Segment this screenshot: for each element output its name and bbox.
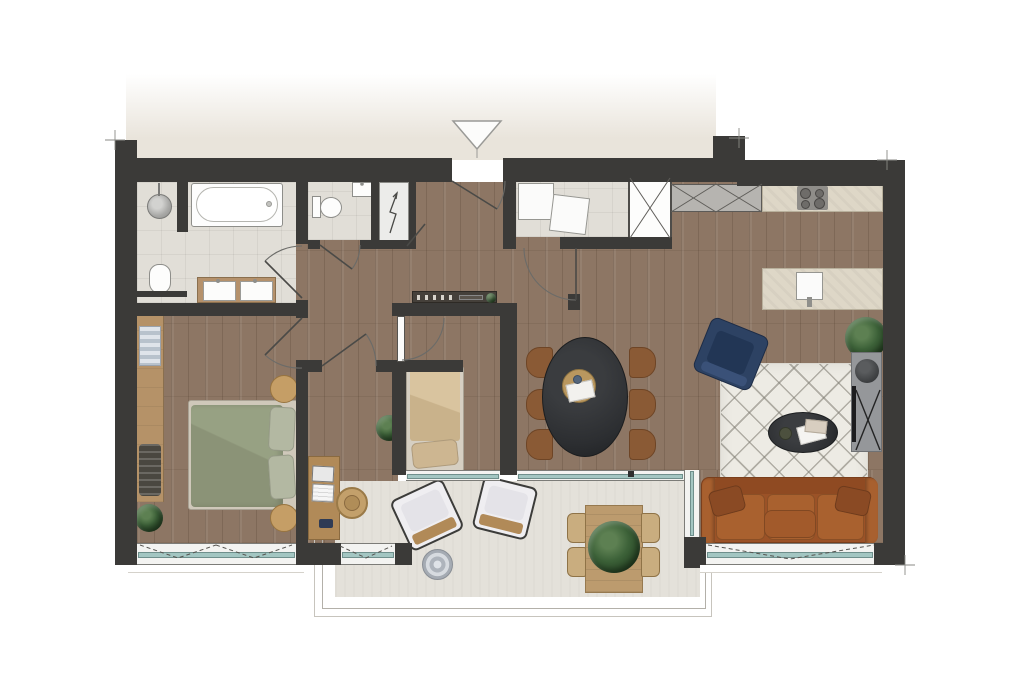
wall-bath-hall-upper xyxy=(296,158,308,244)
burner-4 xyxy=(814,198,825,209)
laptop-screen xyxy=(312,465,335,482)
wall-nook-west xyxy=(392,360,406,475)
burner-2 xyxy=(815,189,824,198)
living-west-glass-pane xyxy=(690,471,694,536)
bed-pillow-bottom xyxy=(267,454,296,500)
wall-shaft-east xyxy=(409,158,416,249)
wall-top-left xyxy=(115,158,452,182)
island-sink-faucet xyxy=(807,297,812,307)
wall-top-middle xyxy=(503,158,737,182)
technical-shaft-floor xyxy=(379,182,409,244)
wall-bathroom-south xyxy=(115,303,300,316)
wall-sideboard xyxy=(392,303,517,316)
master-window-sill xyxy=(128,565,304,573)
cooktop xyxy=(797,186,828,210)
wall-shower-partition xyxy=(177,162,188,232)
wall-living-se-post xyxy=(874,543,885,565)
study-window xyxy=(341,543,395,565)
wc-hand-basin xyxy=(352,182,372,197)
built-in-closet xyxy=(628,176,672,240)
wall-top-right xyxy=(737,160,905,186)
desk xyxy=(308,456,340,540)
wall-nook-stub xyxy=(406,360,463,372)
console-sideboard xyxy=(412,291,497,303)
round-side-table xyxy=(422,549,453,580)
burner-3 xyxy=(801,200,810,209)
tv-screen xyxy=(852,386,856,442)
table-vase xyxy=(573,375,582,384)
living-window-glass xyxy=(707,552,873,558)
slider-handle xyxy=(628,471,634,477)
dining-slider-glass xyxy=(518,474,683,479)
rattan-desk-chair xyxy=(336,487,368,519)
wall-laundry-south xyxy=(560,237,672,249)
vanity-basin-right xyxy=(240,281,273,301)
island-sink xyxy=(796,272,823,300)
open-wardrobe xyxy=(137,312,164,502)
wall-wc-east xyxy=(371,158,379,249)
terrace-plant xyxy=(588,521,640,573)
wall-dining-west xyxy=(500,303,517,475)
leather-sofa xyxy=(701,477,877,543)
candlestick-row xyxy=(417,295,455,300)
wall-hall-post xyxy=(568,294,580,310)
dryer xyxy=(549,194,590,235)
coffee-table-book xyxy=(804,419,827,434)
dining-sliding-door xyxy=(517,470,684,481)
double-bed xyxy=(188,400,298,510)
wall-living-sw-post xyxy=(684,537,706,568)
double-vanity xyxy=(197,277,276,303)
sofa-center-cushion xyxy=(764,510,816,538)
sideboard-plant xyxy=(486,293,496,303)
living-west-glass xyxy=(684,470,700,537)
dining-chair-left-3 xyxy=(526,429,553,460)
wall-right xyxy=(883,160,905,565)
outdoor-chair-1 xyxy=(567,513,586,543)
oval-dining-table xyxy=(542,337,628,457)
oval-coffee-table xyxy=(768,412,838,453)
table-open-book xyxy=(565,379,595,402)
master-window-glass xyxy=(138,552,295,558)
tv-speaker-ball xyxy=(855,359,879,383)
dining-chair-right-3 xyxy=(629,429,656,460)
wall-bedroom-east xyxy=(296,368,308,565)
sideboard-tray xyxy=(459,295,483,300)
wall-wc-south-left xyxy=(308,240,320,249)
laptop-keyboard xyxy=(312,483,335,502)
master-bedroom-plant xyxy=(135,504,163,532)
single-bed xyxy=(406,366,464,472)
hanging-clothes xyxy=(139,444,161,496)
wall-laundry-west xyxy=(503,158,516,249)
bedroom2-sliding-door xyxy=(406,470,500,481)
coffee-table-tray xyxy=(779,427,792,440)
round-nightstand-top xyxy=(270,375,298,403)
wall-left xyxy=(115,140,137,565)
outdoor-chair-4 xyxy=(641,547,660,577)
round-nightstand-bottom xyxy=(270,504,298,532)
washing-machine xyxy=(518,183,554,220)
exterior-ground-band xyxy=(126,74,716,160)
bathroom-toilet xyxy=(149,264,171,294)
burner-1 xyxy=(800,188,811,199)
outdoor-chair-3 xyxy=(641,513,660,543)
folded-clothes xyxy=(139,326,161,366)
kitchen-tall-cabinets xyxy=(671,184,762,212)
wc-toilet-bowl xyxy=(320,197,342,218)
vanity-basin-left xyxy=(203,281,236,301)
study-window-glass xyxy=(342,552,394,558)
living-window-sill xyxy=(700,565,882,573)
bedroom2-slider-glass xyxy=(407,474,499,479)
dining-chair-right-1 xyxy=(629,347,656,378)
single-bed-duvet xyxy=(410,369,460,441)
bathtub-drain xyxy=(266,201,272,207)
rattan-chair-seat xyxy=(344,495,360,511)
bathtub xyxy=(191,183,283,227)
rain-shower-head xyxy=(147,194,172,219)
master-bedroom-window xyxy=(137,543,296,565)
dining-chair-right-2 xyxy=(629,389,656,420)
toilet-half-wall xyxy=(130,291,187,297)
phone xyxy=(319,519,333,528)
wall-study-south-post-right xyxy=(395,543,412,565)
wall-study-south-post-left xyxy=(296,543,341,565)
living-room-window xyxy=(706,543,874,565)
single-bed-pillow xyxy=(411,439,459,470)
floor-plan-canvas xyxy=(0,0,1024,677)
wall-study-north-left xyxy=(296,360,322,372)
bed-pillow-top xyxy=(268,406,296,451)
wall-wc-south-right xyxy=(360,240,416,249)
bedroom2-door-leaf xyxy=(397,316,405,362)
outdoor-chair-2 xyxy=(567,547,586,577)
